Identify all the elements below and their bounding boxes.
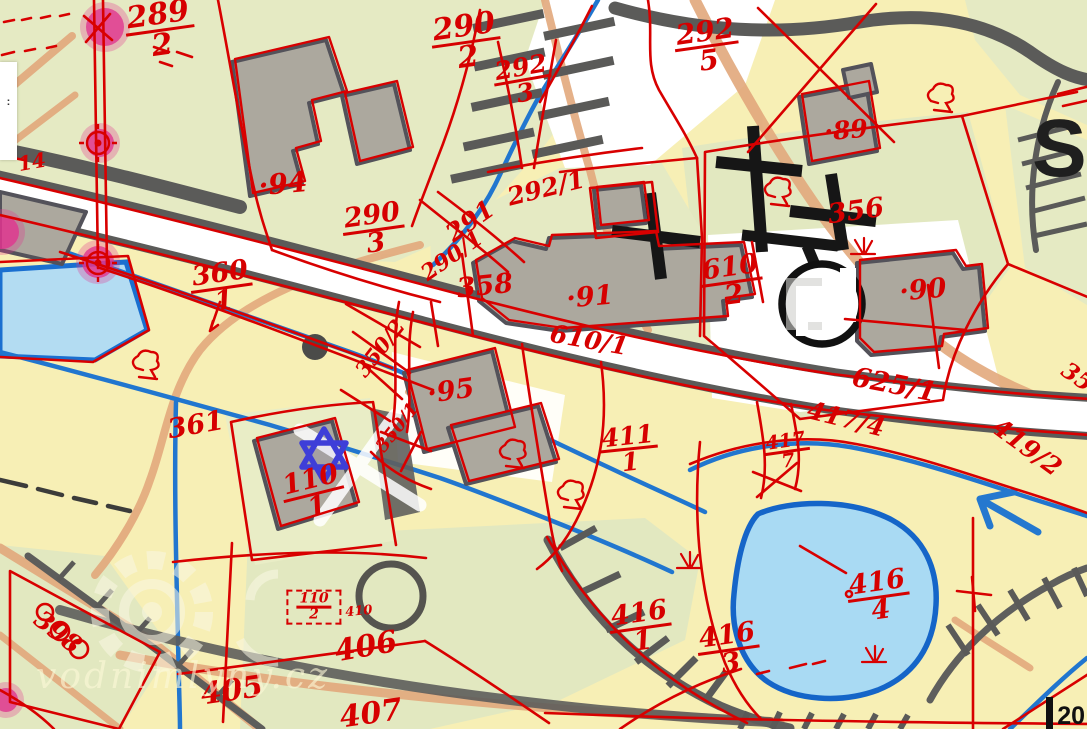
church-symbol-icon [782,264,862,344]
scale-value: 20 [1057,703,1085,729]
watermark-text: vodnimlyny.cz [36,656,330,697]
tree-icon [928,84,954,112]
tree-icon [558,481,584,509]
scale-bar-icon [1046,697,1053,729]
map-canvas[interactable]: 2892290229232925290336016102110141114177… [0,0,1087,729]
survey-point-highlight [86,8,124,46]
scale-indicator: 20 [1046,697,1085,729]
edge-popup[interactable]: : [0,62,17,160]
basemap-place-letter: S [1032,108,1087,190]
tree-icon [133,351,159,379]
pond [733,503,936,698]
base-map-layer [0,0,1087,729]
